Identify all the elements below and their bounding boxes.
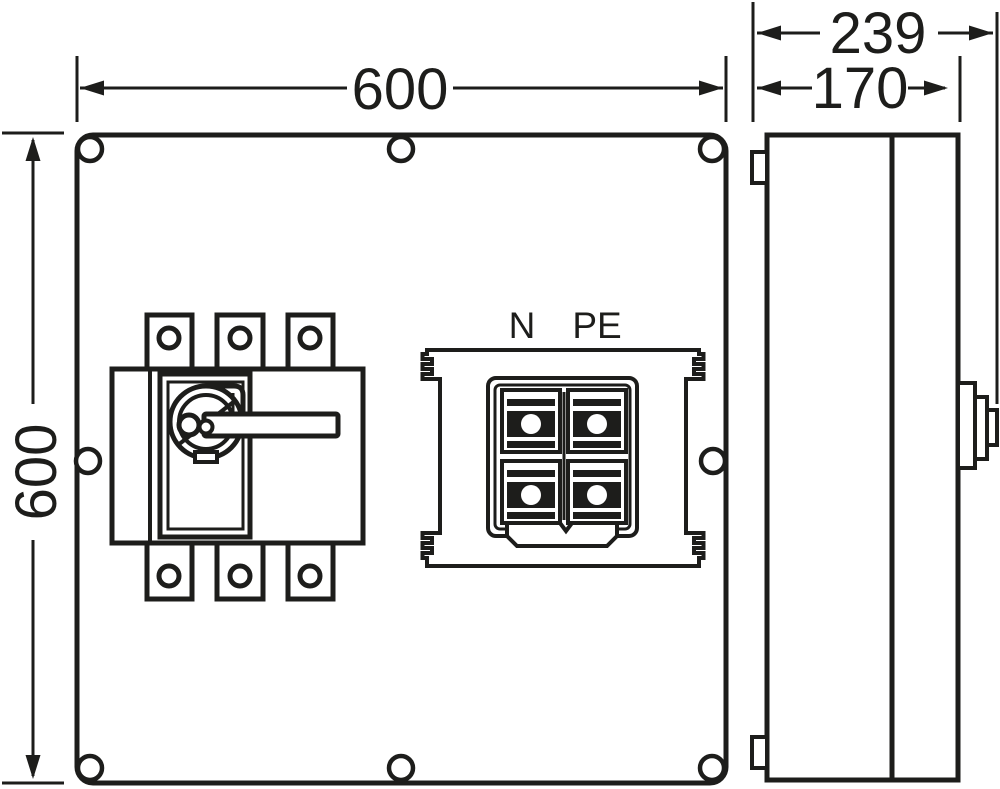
dimension-label-height: 600 (4, 424, 69, 521)
lug-hole (230, 566, 250, 586)
mounting-tab-bottom (752, 737, 767, 768)
handle-lever (204, 414, 338, 436)
enclosure-technical-drawing: N PE (0, 0, 1000, 789)
handle-foot (195, 452, 217, 462)
protrusion-step (958, 383, 975, 468)
front-view: N PE (76, 135, 726, 783)
label-neutral: N (509, 305, 536, 346)
dimension-label-body-depth: 170 (812, 56, 909, 121)
screw-hole (76, 449, 100, 473)
handle-side-protrusion (958, 383, 997, 468)
arrowhead (699, 81, 723, 96)
side-view-outline (767, 135, 958, 780)
screw-hole (78, 756, 102, 780)
dimension-front-height: 600 (2, 133, 69, 783)
switch-bottom-terminals (147, 543, 333, 599)
padlock-hole (179, 415, 199, 435)
clamp-bar (573, 512, 621, 519)
clamp-screw-hole (521, 485, 541, 505)
switch-disconnector (112, 315, 363, 599)
clamp-bar (573, 441, 621, 448)
terminal-clamp (568, 461, 626, 523)
lug-hole (159, 328, 179, 348)
clamp-screw-hole (587, 485, 607, 505)
dimension-body-depth: 170 (757, 56, 960, 122)
clamp-bar (573, 399, 621, 406)
clamp-screw-hole (587, 414, 607, 434)
arrowhead (924, 81, 948, 96)
clamp-bar (573, 470, 621, 477)
screw-hole (700, 756, 724, 780)
screw-hole (700, 137, 724, 161)
screw-hole (389, 137, 413, 161)
screw-hole (389, 756, 413, 780)
lug-hole (230, 328, 250, 348)
drawing-svg: N PE (0, 0, 1000, 789)
screw-hole (701, 449, 725, 473)
lug-hole (300, 328, 320, 348)
terminal-clamp (502, 390, 560, 452)
clamp-bar (507, 512, 555, 519)
cable-clamp-bracket (507, 523, 617, 546)
arrowhead (26, 755, 41, 779)
dimension-label-width: 600 (352, 57, 449, 122)
mounting-tab-top (752, 152, 767, 183)
padlock-hole-small (200, 421, 213, 434)
protrusion-step (987, 410, 997, 445)
switch-top-terminals (147, 315, 333, 369)
terminal-clamp (568, 390, 626, 452)
clamp-bar (507, 399, 555, 406)
screw-hole (78, 137, 102, 161)
clamp-bar (507, 441, 555, 448)
arrowhead (757, 81, 781, 96)
arrowhead (757, 26, 781, 41)
label-pe: PE (572, 305, 621, 346)
lug-hole (159, 566, 179, 586)
arrowhead (969, 26, 993, 41)
clamp-bar (507, 470, 555, 477)
side-view (752, 135, 997, 780)
dimension-front-width: 600 (77, 56, 726, 122)
lug-hole (300, 566, 320, 586)
terminal-clamp (502, 461, 560, 523)
arrowhead (80, 81, 104, 96)
clamp-screw-hole (521, 414, 541, 434)
arrowhead (26, 137, 41, 161)
